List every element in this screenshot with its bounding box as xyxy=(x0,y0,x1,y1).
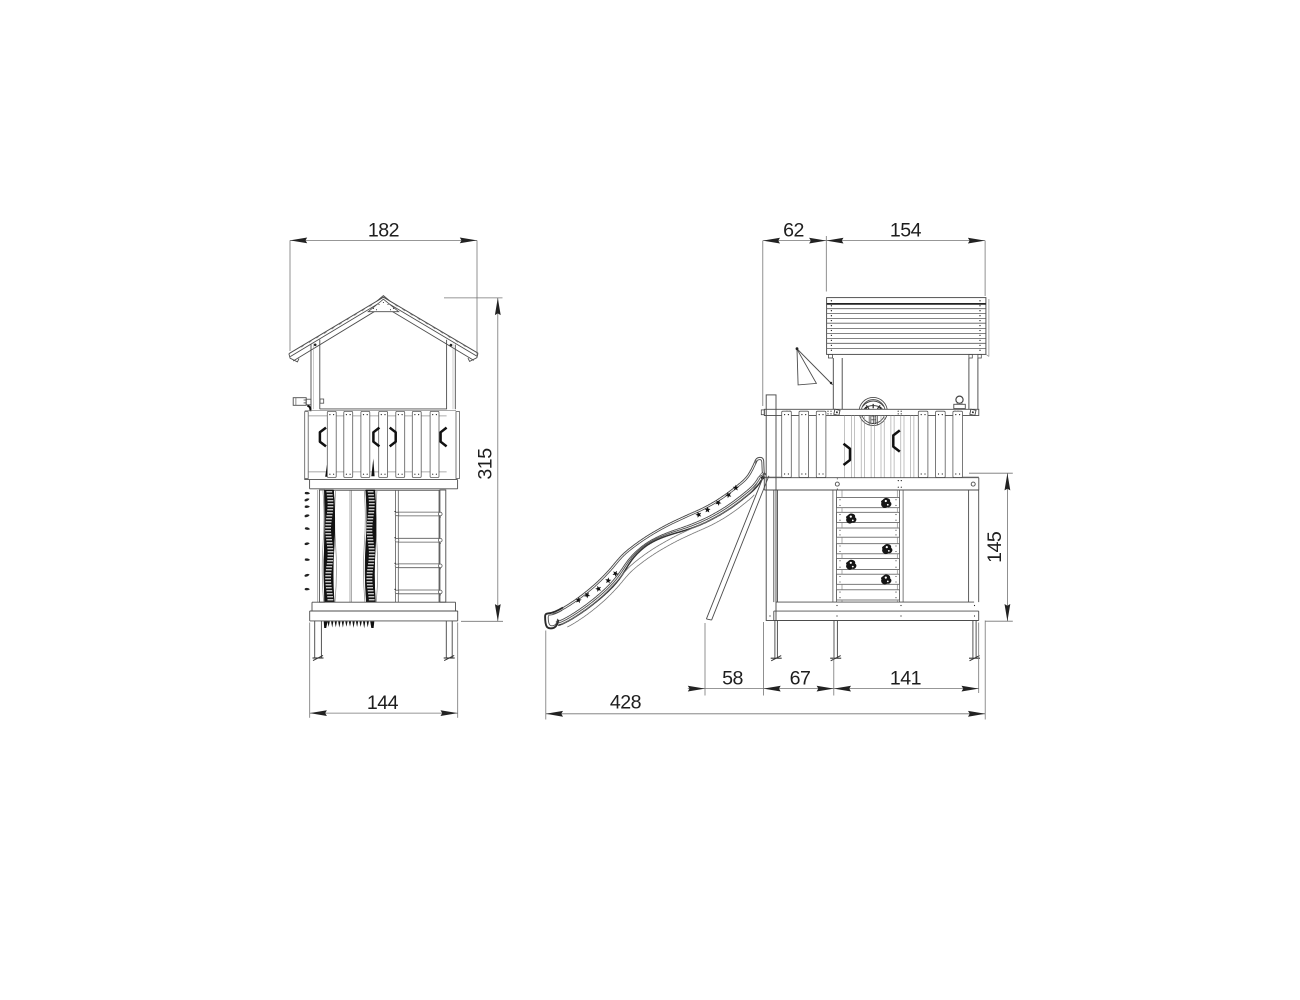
svg-text:62: 62 xyxy=(783,220,804,242)
svg-text:182: 182 xyxy=(368,220,399,242)
svg-text:144: 144 xyxy=(367,692,399,714)
svg-text:58: 58 xyxy=(722,668,743,690)
svg-text:428: 428 xyxy=(610,692,642,714)
svg-text:141: 141 xyxy=(890,668,921,690)
svg-text:154: 154 xyxy=(890,220,922,242)
svg-text:67: 67 xyxy=(790,668,811,690)
svg-text:145: 145 xyxy=(984,531,1006,563)
svg-text:315: 315 xyxy=(474,448,496,480)
